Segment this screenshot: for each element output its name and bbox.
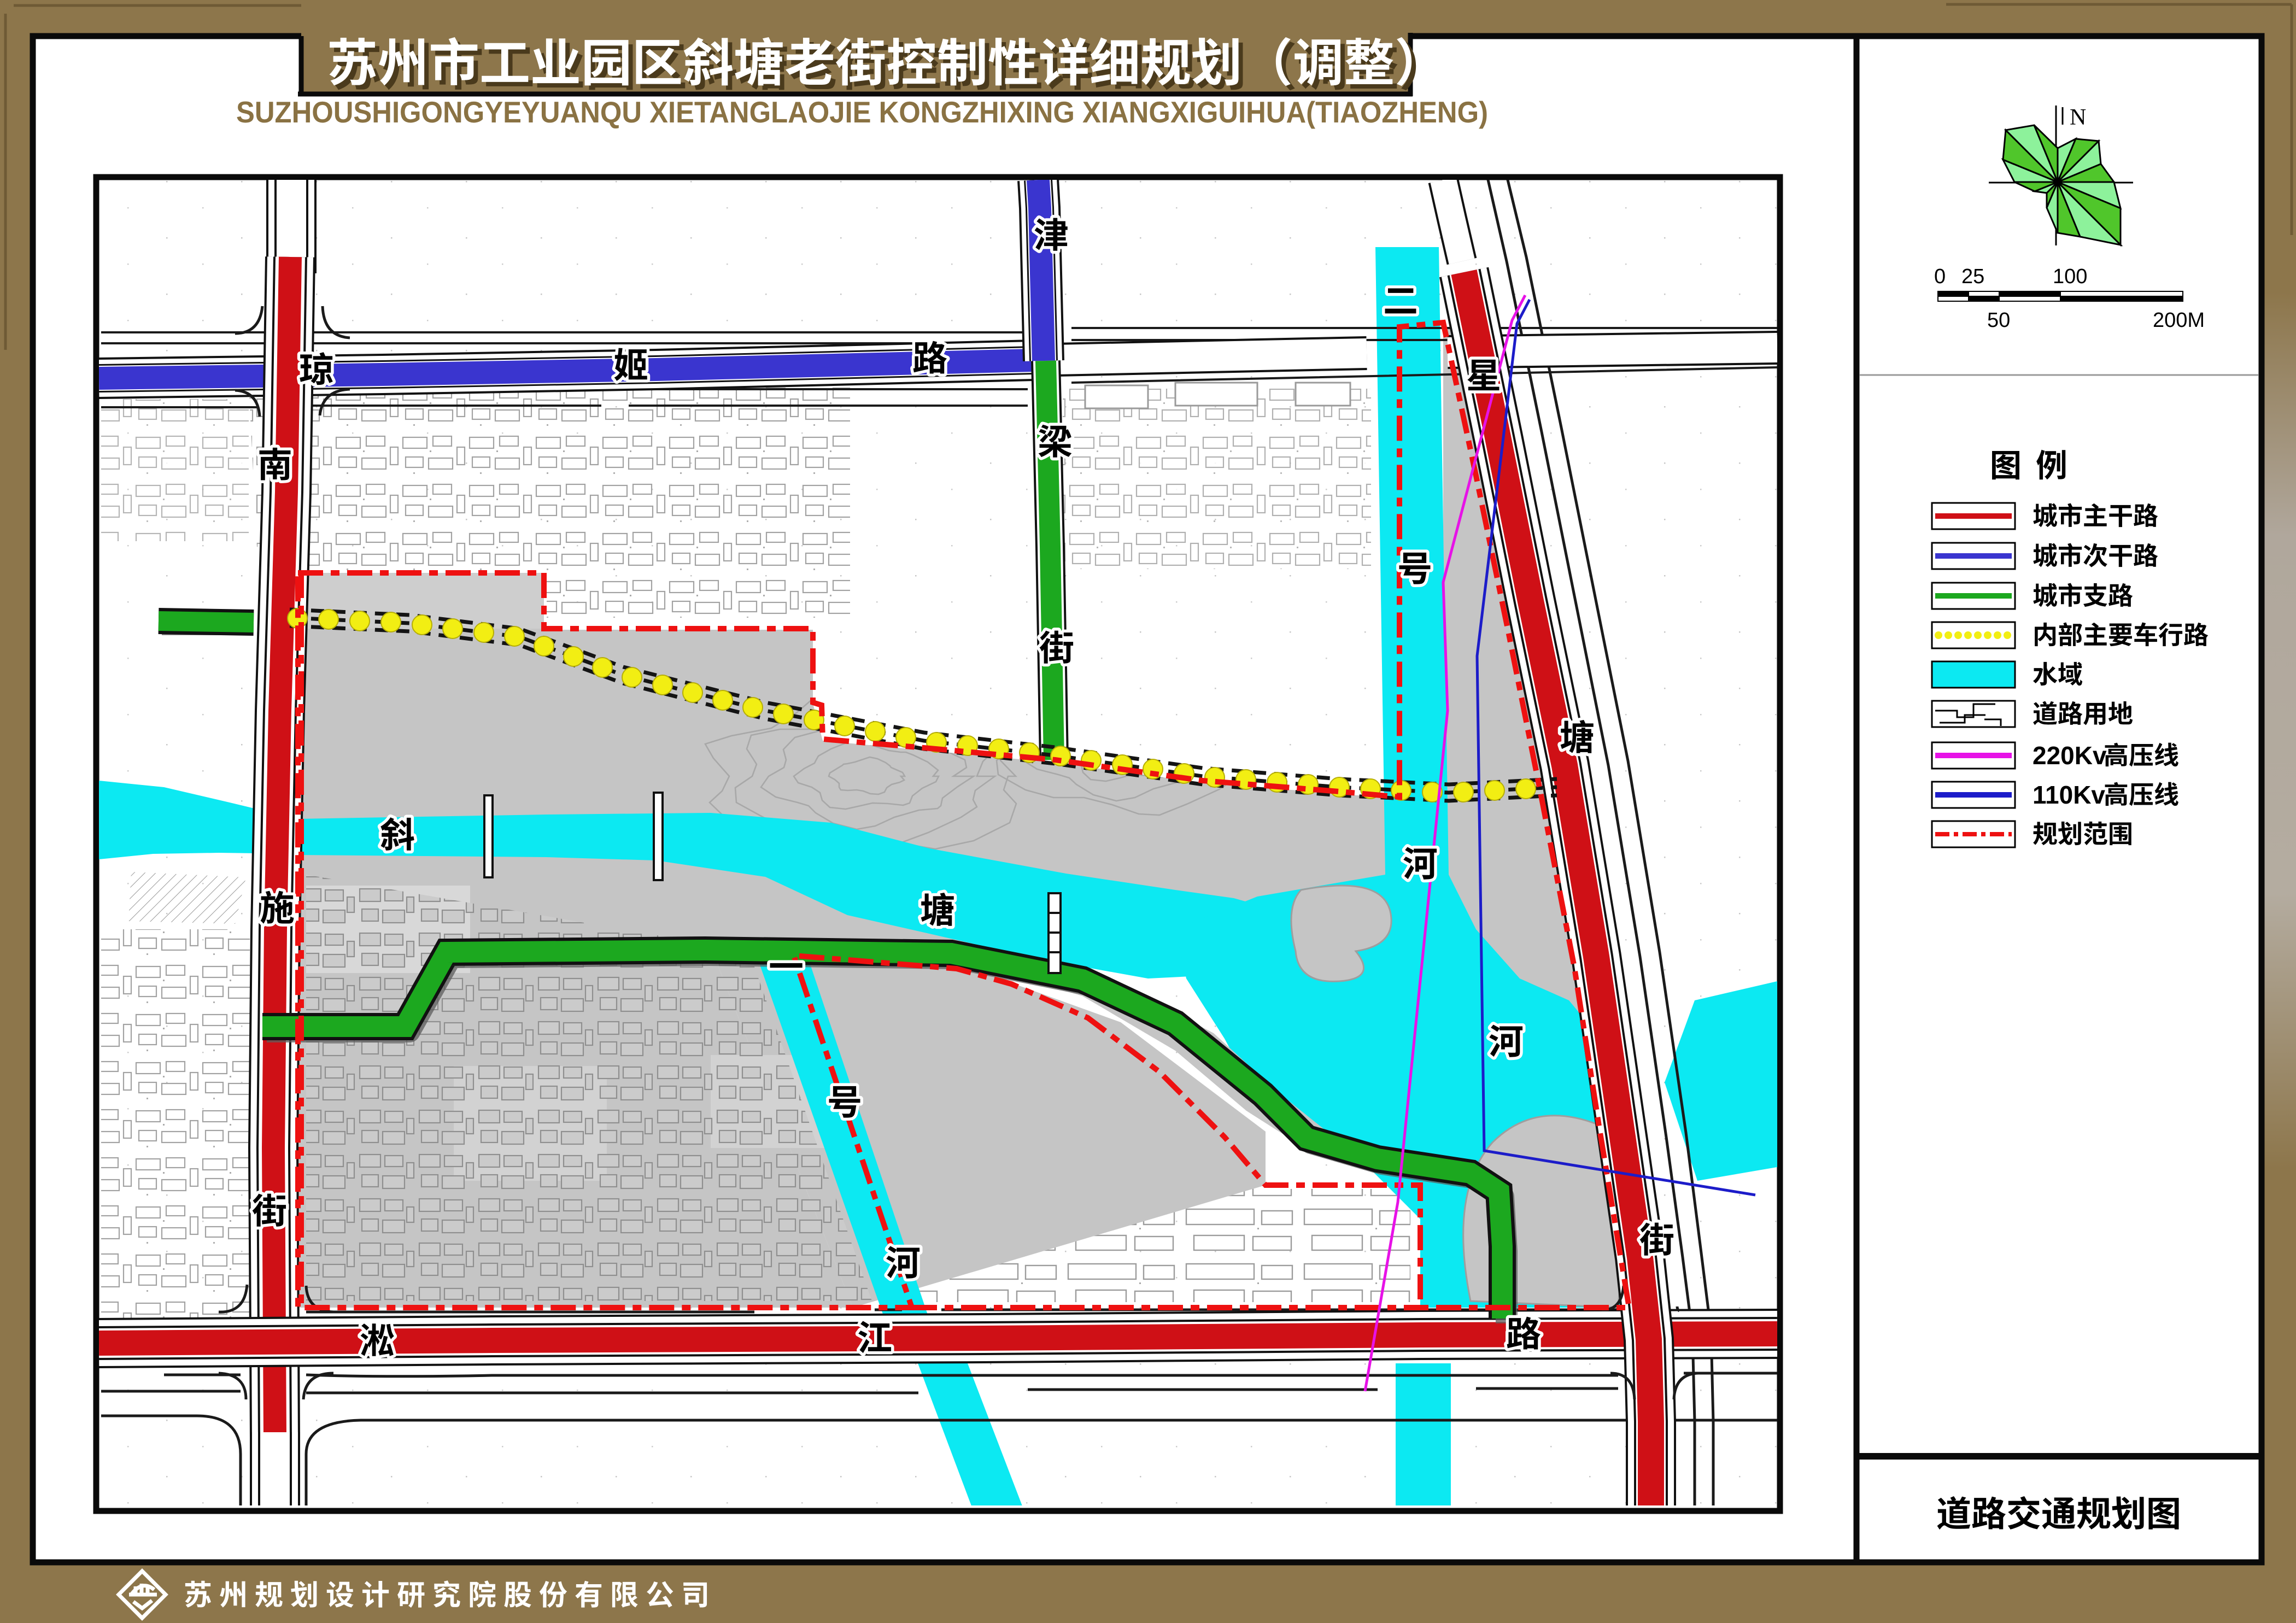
svg-text:200M: 200M <box>2153 309 2205 332</box>
svg-text:110Kv: 110Kv <box>2033 781 2105 809</box>
svg-text:220Kv: 220Kv <box>2033 741 2107 770</box>
svg-text:25: 25 <box>1961 265 1984 288</box>
svg-text:0: 0 <box>1934 265 1946 288</box>
svg-text:N: N <box>2070 105 2086 130</box>
svg-text:100: 100 <box>2053 265 2087 288</box>
svg-text:SUZHOUSHIGONGYEYUANQU XIETANGL: SUZHOUSHIGONGYEYUANQU XIETANGLAOJIE KONG… <box>236 95 1488 129</box>
svg-text:50: 50 <box>1987 309 2010 332</box>
